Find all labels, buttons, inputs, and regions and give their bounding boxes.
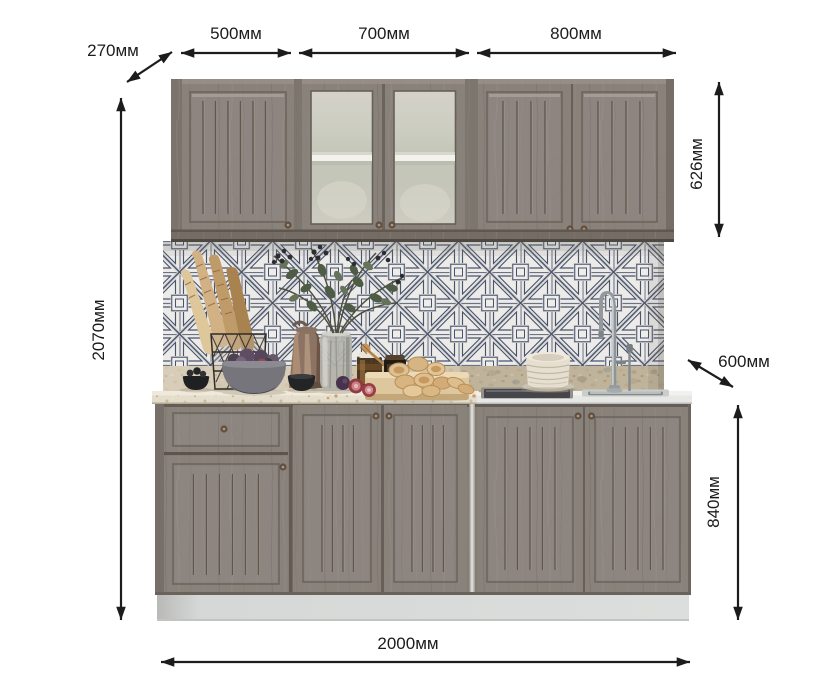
svg-text:626мм: 626мм <box>687 138 706 190</box>
svg-text:700мм: 700мм <box>358 24 410 43</box>
svg-text:840мм: 840мм <box>704 476 723 528</box>
svg-text:600мм: 600мм <box>718 352 770 371</box>
svg-text:500мм: 500мм <box>210 24 262 43</box>
svg-text:270мм: 270мм <box>87 41 139 60</box>
svg-text:800мм: 800мм <box>550 24 602 43</box>
svg-text:2070мм: 2070мм <box>89 299 108 360</box>
svg-text:2000мм: 2000мм <box>377 634 438 653</box>
